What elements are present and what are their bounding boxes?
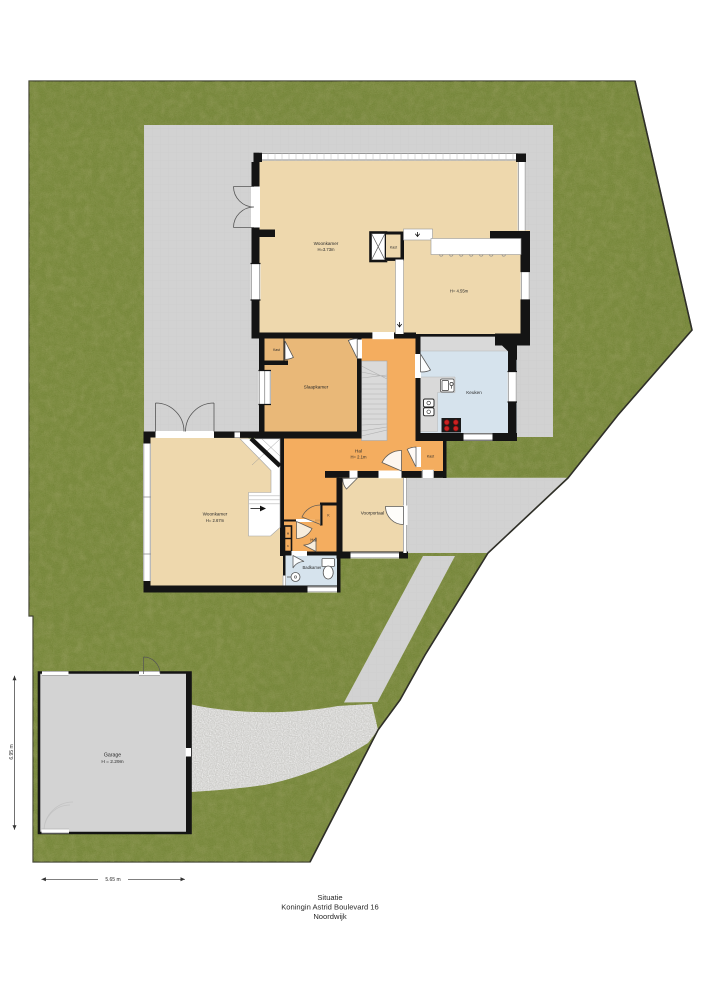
svg-text:Kast: Kast bbox=[273, 348, 280, 352]
svg-text:Kast: Kast bbox=[390, 246, 397, 250]
svg-text:Woonkamer: Woonkamer bbox=[203, 512, 228, 517]
svg-text:5.65 m: 5.65 m bbox=[105, 877, 120, 883]
svg-text:Hal: Hal bbox=[355, 449, 362, 454]
svg-text:Garage: Garage bbox=[104, 753, 121, 759]
svg-text:Keuken: Keuken bbox=[466, 390, 482, 395]
svg-text:Koningin Astrid Boulevard 16: Koningin Astrid Boulevard 16 bbox=[281, 903, 379, 912]
svg-text:Slaapkamer: Slaapkamer bbox=[304, 385, 329, 390]
svg-text:Badkamer: Badkamer bbox=[302, 565, 322, 570]
svg-text:6.95 m: 6.95 m bbox=[9, 744, 15, 759]
svg-text:Voorportaal: Voorportaal bbox=[361, 511, 385, 516]
svg-text:H= 2.1m: H= 2.1m bbox=[351, 455, 367, 460]
svg-text:H=3.73m: H=3.73m bbox=[317, 247, 335, 252]
svg-text:Hal: Hal bbox=[310, 538, 316, 543]
svg-text:H= 2.67m: H= 2.67m bbox=[206, 518, 225, 523]
svg-text:Woonkamer: Woonkamer bbox=[314, 241, 339, 246]
svg-text:H = 2.29m: H = 2.29m bbox=[101, 759, 123, 765]
svg-text:Situatie: Situatie bbox=[317, 893, 342, 902]
svg-text:K: K bbox=[287, 544, 289, 548]
svg-text:Noordwijk: Noordwijk bbox=[313, 912, 347, 921]
svg-text:Kast: Kast bbox=[427, 455, 434, 459]
svg-text:H= 4.55m: H= 4.55m bbox=[450, 289, 469, 294]
